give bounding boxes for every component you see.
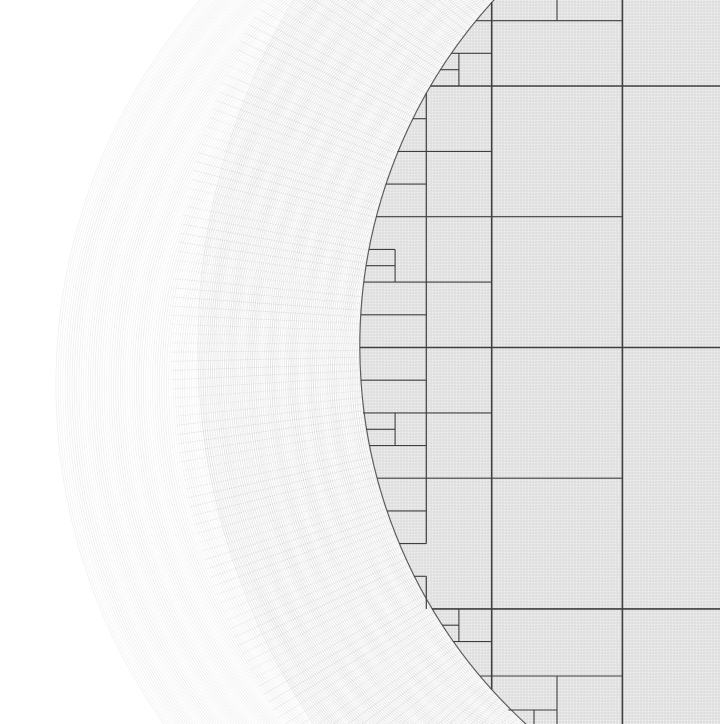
figure-svg	[0, 0, 720, 724]
mesh-figure-canvas	[0, 0, 720, 724]
